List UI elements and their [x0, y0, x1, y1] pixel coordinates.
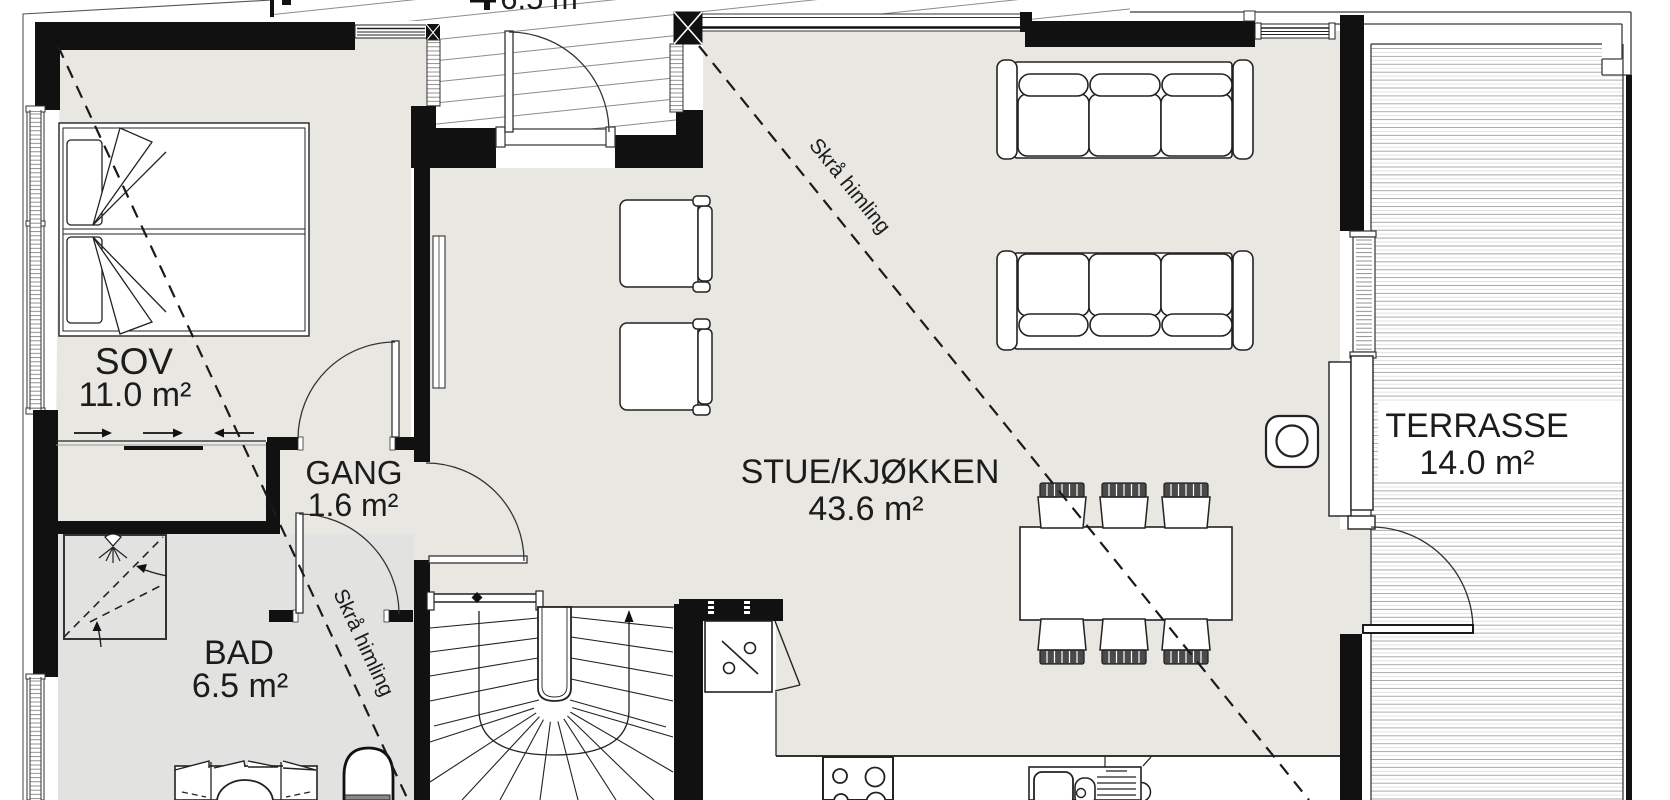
svg-text:GANG: GANG	[305, 454, 402, 491]
svg-text:43.6 m²: 43.6 m²	[808, 490, 923, 528]
svg-text:STUE/KJØKKEN: STUE/KJØKKEN	[741, 453, 1000, 491]
svg-text:14.0 m²: 14.0 m²	[1419, 444, 1534, 482]
svg-text:TERRASSE: TERRASSE	[1385, 407, 1568, 445]
svg-text:6.5 m²: 6.5 m²	[192, 667, 288, 705]
svg-text:11.0 m²: 11.0 m²	[79, 376, 192, 414]
svg-text:1.6 m²: 1.6 m²	[308, 487, 399, 523]
svg-text:6.5 m: 6.5 m	[500, 0, 578, 16]
